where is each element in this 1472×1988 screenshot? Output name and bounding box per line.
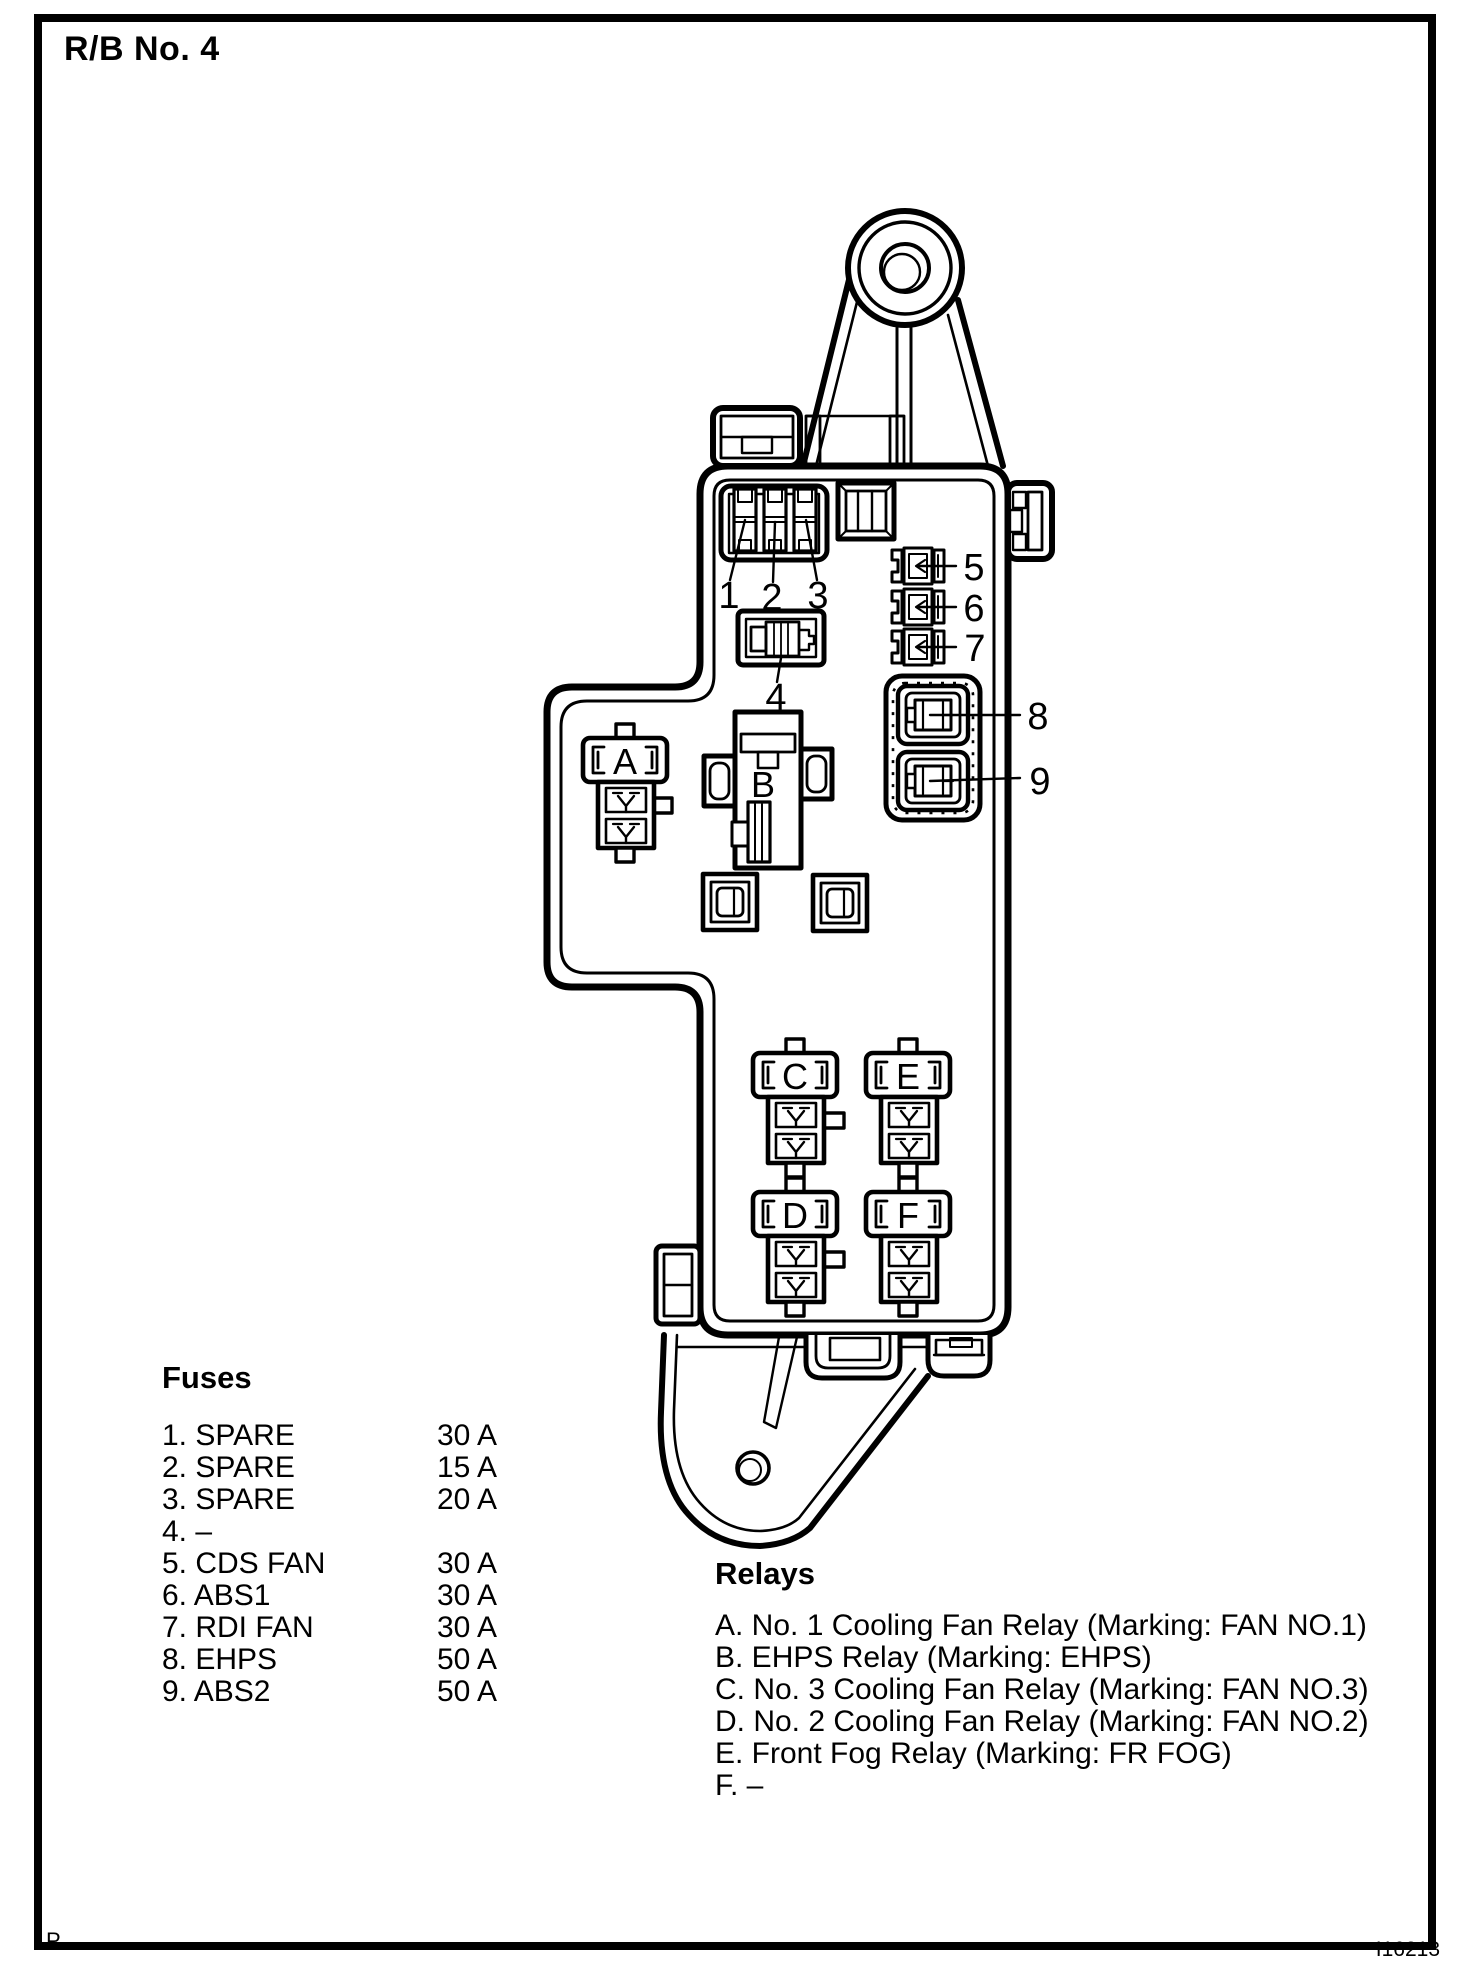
fuse-amps: 15 A xyxy=(437,1452,497,1484)
right-connector-tab xyxy=(1008,483,1052,559)
fuse-amps: 30 A xyxy=(437,1420,497,1452)
relay-letter-D: D xyxy=(782,1195,808,1236)
relay-letter-F: F xyxy=(897,1195,919,1236)
bottom-bolt-hole xyxy=(737,1452,769,1484)
fuse-legend-row: 6. ABS1 30 A xyxy=(162,1580,497,1612)
callout-relay-8: 8 xyxy=(1027,696,1048,738)
relay-legend-row: B. EHPS Relay (Marking: EHPS) xyxy=(715,1642,1369,1674)
bottom-edge-connector-center xyxy=(806,1335,900,1378)
relays-heading: Relays xyxy=(715,1556,1369,1592)
callout-fuse-5: 5 xyxy=(963,547,984,589)
fuse-amps: 30 A xyxy=(437,1548,497,1580)
relay-letter-E: E xyxy=(896,1056,920,1097)
top-left-connector-tab xyxy=(713,408,800,466)
bottom-left-connector-tab xyxy=(656,1246,700,1324)
fuse-legend-row: 1. SPARE 30 A xyxy=(162,1420,497,1452)
relay-letter-A: A xyxy=(613,741,637,782)
callout-relay-9: 9 xyxy=(1029,761,1050,803)
fuse-label: 5. CDS FAN xyxy=(162,1548,437,1580)
fuses-list: 1. SPARE 30 A 2. SPARE 15 A 3. SPARE 20 … xyxy=(162,1420,497,1708)
fuse-label: 9. ABS2 xyxy=(162,1676,437,1708)
fuses-legend: Fuses 1. SPARE 30 A 2. SPARE 15 A 3. SPA… xyxy=(162,1360,497,1708)
fuse-amps: 50 A xyxy=(437,1644,497,1676)
fuse-label: 4. – xyxy=(162,1516,437,1548)
fuse-label: 1. SPARE xyxy=(162,1420,437,1452)
callout-fuse-3: 3 xyxy=(807,575,828,617)
fuses-heading: Fuses xyxy=(162,1360,497,1396)
bottom-edge-connector-right xyxy=(928,1335,990,1376)
relay-legend-row: D. No. 2 Cooling Fan Relay (Marking: FAN… xyxy=(715,1706,1369,1738)
callout-fuse-6: 6 xyxy=(963,588,984,630)
fuse-legend-row: 8. EHPS 50 A xyxy=(162,1644,497,1676)
fuse-label: 7. RDI FAN xyxy=(162,1612,437,1644)
relay-block-8-9 xyxy=(886,676,980,820)
fuse-legend-row: 4. – xyxy=(162,1516,497,1548)
fuse-label: 3. SPARE xyxy=(162,1484,437,1516)
fuse-label: 6. ABS1 xyxy=(162,1580,437,1612)
callout-fuse-7: 7 xyxy=(964,628,985,670)
page-marker: P xyxy=(46,1928,61,1954)
relay-legend-row: F. – xyxy=(715,1770,1369,1802)
small-square-connector-right xyxy=(813,875,867,931)
fuse-amps: 20 A xyxy=(437,1484,497,1516)
small-square-connector-left xyxy=(703,874,757,930)
figure-code: I16213 xyxy=(1376,1938,1440,1962)
relay-legend-row: E. Front Fog Relay (Marking: FR FOG) xyxy=(715,1738,1369,1770)
fuse-amps: 30 A xyxy=(437,1612,497,1644)
fuse-legend-row: 2. SPARE 15 A xyxy=(162,1452,497,1484)
fuse-label: 2. SPARE xyxy=(162,1452,437,1484)
relays-legend: Relays A. No. 1 Cooling Fan Relay (Marki… xyxy=(715,1556,1369,1802)
callout-fuse-2: 2 xyxy=(761,577,782,619)
fuse-amps: 50 A xyxy=(437,1676,497,1708)
relay-letter-C: C xyxy=(782,1056,808,1097)
manual-page: R/B No. 4 xyxy=(0,0,1472,1988)
callout-fuse-1: 1 xyxy=(718,575,739,617)
relay-legend-row: A. No. 1 Cooling Fan Relay (Marking: FAN… xyxy=(715,1610,1369,1642)
fuse-label: 8. EHPS xyxy=(162,1644,437,1676)
fuse-legend-row: 5. CDS FAN 30 A xyxy=(162,1548,497,1580)
fuse-legend-row: 7. RDI FAN 30 A xyxy=(162,1612,497,1644)
square-connector-top xyxy=(838,483,894,539)
fuse-legend-row: 3. SPARE 20 A xyxy=(162,1484,497,1516)
top-mounting-bracket xyxy=(803,211,1003,466)
relays-list: A. No. 1 Cooling Fan Relay (Marking: FAN… xyxy=(715,1610,1369,1802)
callout-fuse-4: 4 xyxy=(765,677,786,719)
relay-legend-row: C. No. 3 Cooling Fan Relay (Marking: FAN… xyxy=(715,1674,1369,1706)
relay-letter-B: B xyxy=(751,764,775,805)
fuse-legend-row: 9. ABS2 50 A xyxy=(162,1676,497,1708)
fuse-amps: 30 A xyxy=(437,1580,497,1612)
